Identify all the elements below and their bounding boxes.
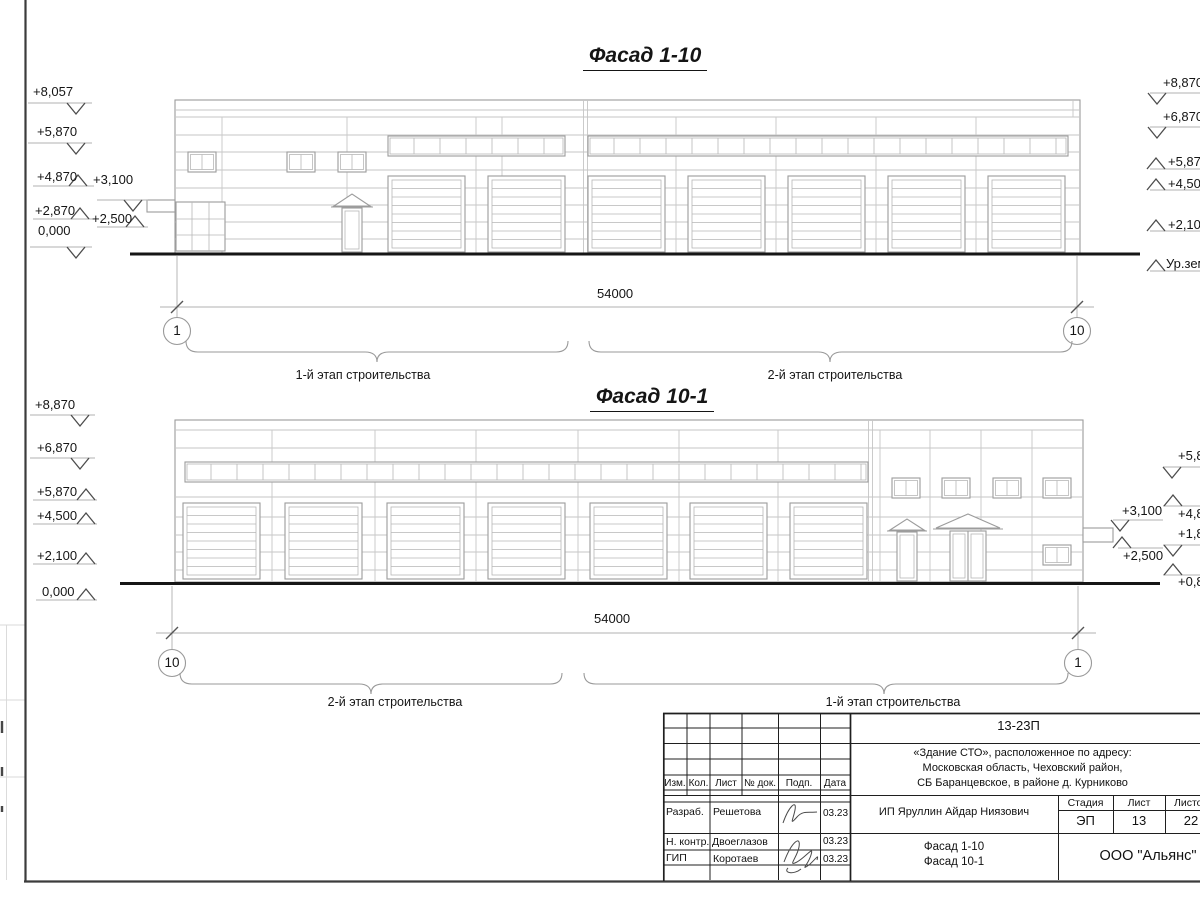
stage-label: 1-й этап строительства [203, 368, 523, 382]
company-name: ООО "Альянс" [1058, 848, 1200, 865]
elevation-mark-label: +5,870 [37, 485, 77, 500]
axis-bubble-10: 10 [1063, 317, 1091, 345]
project-address-line: «Здание СТО», расположенное по адресу: [850, 747, 1195, 760]
elevation-mark-label: 0,000 [38, 224, 71, 239]
elevation-mark-label: +2,500 [1123, 549, 1163, 564]
elevation-mark-label: +3,100 [1122, 504, 1162, 519]
person-name: Коротаев [713, 853, 758, 865]
elevation-mark-label: +6,870 [37, 441, 77, 456]
axis-bubble-1: 1 [1064, 649, 1092, 677]
dimension-value: 54000 [594, 612, 630, 627]
person-name: Решетова [713, 806, 761, 818]
date-value: 03.23 [822, 854, 849, 866]
drawing-name-line: Фасад 10-1 [852, 856, 1056, 869]
sheet-number: 13 [1113, 814, 1165, 829]
elevation-mark-label: +4,500 [37, 509, 77, 524]
drawing-sheet: Фасад 1-10 Фасад 10-1 +8,057 +5,870 +4,8… [0, 0, 1200, 900]
client-name: ИП Яруллин Айдар Ниязович [852, 806, 1056, 819]
elevation-mark-label: +2,100 [1168, 218, 1200, 233]
sheet-header: Лист [1113, 797, 1165, 809]
elevation-mark-label: +2,870 [35, 204, 75, 219]
drawing-name-line: Фасад 1-10 [852, 841, 1056, 854]
sheets-total: 22 [1165, 814, 1200, 829]
elevation-mark-label: +8,057 [33, 85, 73, 100]
stage-label: 2-й этап строительства [675, 368, 995, 382]
axis-bubble-10: 10 [158, 649, 186, 677]
column-header-ndok: № док. [742, 778, 778, 790]
facade-10-1-drawing [120, 420, 1160, 584]
elevation-mark-label: +5,870 [37, 125, 77, 140]
stage-label: 1-й этап строительства [733, 695, 1053, 709]
project-address-line: Московская область, Чеховский район, [850, 762, 1195, 775]
facade-10-1-dimension [156, 586, 1096, 677]
column-header-kol: Кол. [687, 778, 710, 790]
elevation-mark-label: +3,100 [93, 173, 133, 188]
role-label: Разраб. [666, 806, 704, 818]
stage-label: 2-й этап строительства [235, 695, 555, 709]
facade-top-title: Фасад 1-10 [583, 44, 707, 71]
elevation-mark-label: +4,500 [1168, 177, 1200, 192]
date-value: 03.23 [822, 836, 849, 848]
column-header-data: Дата [820, 778, 850, 790]
elevation-mark-label: +2,100 [37, 549, 77, 564]
date-value: 03.23 [822, 808, 849, 820]
doc-number: 13-23П [850, 719, 1187, 734]
elevation-mark-label: +2,500 [92, 212, 132, 227]
elevation-mark-label: +8,870 [1163, 76, 1200, 91]
axis-bubble-1: 1 [163, 317, 191, 345]
elevation-mark-label: +8,870 [35, 398, 75, 413]
facade-bottom-title: Фасад 10-1 [590, 385, 714, 412]
role-label: ГИП [666, 852, 687, 864]
person-name: Двоеглазов [712, 836, 768, 848]
column-header-podp: Подп. [778, 778, 820, 790]
stage-header: Стадия [1058, 797, 1113, 809]
signature-marks [783, 805, 818, 873]
elevation-mark-label: +6,870 [1163, 110, 1200, 125]
stage-value: ЭП [1058, 814, 1113, 829]
facade-10-1-stage-braces [180, 673, 1068, 694]
elevation-mark-label: Ур.земли [1166, 257, 1200, 272]
project-address-line: СБ Баранцевское, в районе д. Курниково [850, 777, 1195, 790]
elevation-mark-label: +4,870 [1178, 507, 1200, 522]
sheets-header: Листов [1165, 797, 1200, 809]
dimension-value: 54000 [597, 287, 633, 302]
role-label: Н. контр. [666, 836, 709, 848]
elevation-mark-label: +1,870 [1178, 527, 1200, 542]
facade-1-10-drawing [130, 100, 1140, 254]
elevation-mark-label: +4,870 [37, 170, 77, 185]
column-header-izm: Изм. [663, 778, 687, 790]
elevation-mark-label: 0,000 [42, 585, 75, 600]
elevation-mark-label: +0,870 [1178, 575, 1200, 590]
column-header-list: Лист [710, 778, 742, 790]
facade-1-10-stage-braces [186, 341, 1072, 362]
elevation-mark-label: +5,870 [1168, 155, 1200, 170]
elevation-mark-label: +5,870 [1178, 449, 1200, 464]
